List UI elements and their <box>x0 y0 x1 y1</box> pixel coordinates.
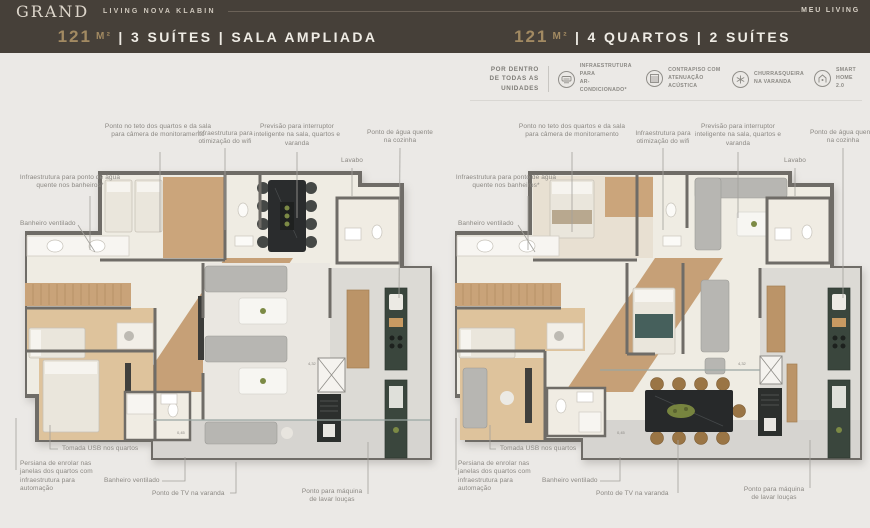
meu-living-label: MEU LIVING <box>801 7 860 14</box>
acoustic-floor-icon <box>646 70 663 87</box>
annotation-usb: Tomada USB nos quartos <box>62 445 146 453</box>
floorplan-left: 4,32 0,45 <box>25 168 435 468</box>
plan-titles-row: 121 M² | 3 SUÍTES | SALA AMPLIADA 121 M²… <box>0 20 870 53</box>
features-underline <box>470 100 862 101</box>
dimension-label: 0,45 <box>617 430 626 435</box>
ac-unit-icon <box>558 71 575 88</box>
plan-title-right: 121 M² | 4 QUARTOS | 2 SUÍTES <box>435 20 870 53</box>
features-row: POR DENTRO DE TODAS AS UNIDADES INFRAEST… <box>470 60 866 98</box>
annotation-blinds: Persiana de enrolar nas janelas dos quar… <box>20 460 94 494</box>
annotation-hot-water-bath: Infraestrutura para ponto de água quente… <box>450 174 562 191</box>
annotation-hot-water-kitchen: Ponto de água quente na cozinha <box>364 129 436 146</box>
annotation-tv-balcony: Ponto de TV na varanda <box>596 490 676 498</box>
feature-acoustic: CONTRAPISO COMATENUAÇÃO ACÚSTICA <box>646 67 722 90</box>
plan-title-left: 121 M² | 3 SUÍTES | SALA AMPLIADA <box>0 20 435 53</box>
features-divider <box>548 66 549 92</box>
annotation-vent-bath: Banheiro ventilado <box>458 220 522 228</box>
annotation-vent-bath-2: Banheiro ventilado <box>542 477 606 485</box>
annotation-blinds: Persiana de enrolar nas janelas dos quar… <box>458 460 532 494</box>
annotation-smart-switch: Previsão para interruptor inteligente na… <box>251 123 343 148</box>
area-value: 121 <box>58 27 92 47</box>
dimension-label: 0,45 <box>177 430 186 435</box>
annotation-dishwasher: Ponto para máquina de lavar louças <box>742 486 806 503</box>
annotation-hot-water-kitchen: Ponto de água quente na cozinha <box>807 129 870 146</box>
annotation-lavabo: Lavabo <box>330 157 374 165</box>
annotation-lavabo: Lavabo <box>773 157 817 165</box>
annotation-camera: Ponto no teto dos quartos e da sala para… <box>516 123 628 140</box>
header-bar: GRAND LIVING NOVA KLABIN MEU LIVING 121 … <box>0 0 870 53</box>
annotation-usb: Tomada USB nos quartos <box>500 445 584 453</box>
annotation-vent-bath-2: Banheiro ventilado <box>104 477 168 485</box>
dimension-label: 4,32 <box>738 361 747 366</box>
brand-tagline: LIVING NOVA KLABIN <box>103 8 216 15</box>
page: GRAND LIVING NOVA KLABIN MEU LIVING 121 … <box>0 0 870 528</box>
features-intro: POR DENTRO DE TODAS AS UNIDADES <box>470 65 539 93</box>
plan-title-suffix: | 3 SUÍTES | SALA AMPLIADA <box>118 29 377 45</box>
annotation-wifi: Infraestrutura para otimização do wifi <box>623 130 703 147</box>
smart-home-icon <box>814 70 831 87</box>
annotation-hot-water-bath: Infraestrutura para ponto de água quente… <box>14 174 126 191</box>
plan-title-suffix: | 4 QUARTOS | 2 SUÍTES <box>575 29 791 45</box>
area-unit: M² <box>552 31 568 42</box>
dimension-label: 4,32 <box>308 361 317 366</box>
feature-smart-home: SMARTHOME 2.0 <box>814 67 856 90</box>
annotation-dishwasher: Ponto para máquina de lavar louças <box>300 488 364 505</box>
annotation-tv-balcony: Ponto de TV na varanda <box>152 490 232 498</box>
annotation-vent-bath: Banheiro ventilado <box>20 220 84 228</box>
feature-grill: CHURRASQUEIRANA VARANDA <box>732 71 804 88</box>
grill-icon <box>732 71 749 88</box>
area-value: 121 <box>514 27 548 47</box>
annotation-smart-switch: Previsão para interruptor inteligente na… <box>692 123 784 148</box>
feature-ac: INFRAESTRUTURA PARAAR-CONDICIONADO* <box>558 63 636 94</box>
floorplan-right: 4,32 0,45 <box>455 168 865 468</box>
brand-logo: GRAND <box>16 2 89 21</box>
header-divider-line <box>228 11 800 12</box>
area-unit: M² <box>96 31 112 42</box>
